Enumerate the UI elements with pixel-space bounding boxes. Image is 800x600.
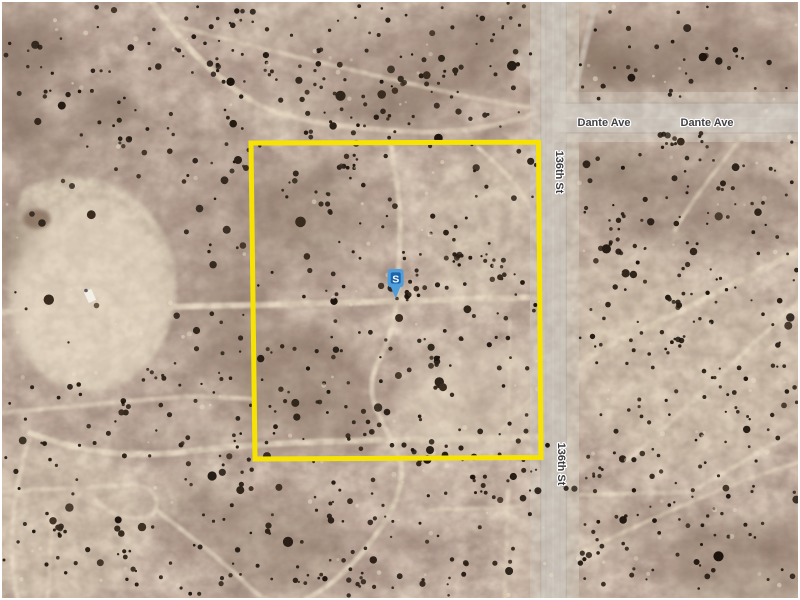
svg-text:Dante Ave: Dante Ave	[681, 117, 734, 129]
svg-text:Dante Ave: Dante Ave	[578, 117, 631, 129]
svg-text:136th St: 136th St	[555, 443, 567, 486]
svg-text:S: S	[392, 274, 399, 286]
svg-text:136th St: 136th St	[553, 151, 565, 194]
